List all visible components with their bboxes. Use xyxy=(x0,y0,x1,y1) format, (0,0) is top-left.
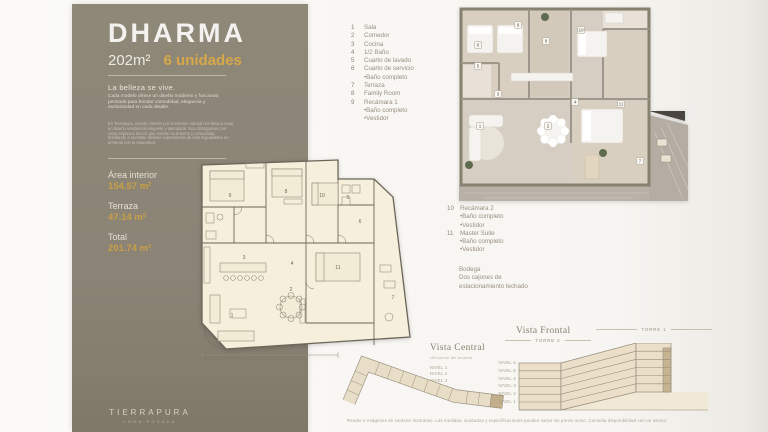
room-number-tag: 2 xyxy=(545,123,552,130)
bracket-line xyxy=(565,340,591,341)
legend-row: 4 1/2 Baño xyxy=(351,49,414,57)
legend-number xyxy=(447,246,460,254)
legend-row: 7 Terraza xyxy=(351,82,414,90)
legend-row: 10 Recámara 2 xyxy=(447,205,503,213)
legend-number: 9 xyxy=(351,99,364,107)
vista-frontal-title: Vista Frontal xyxy=(516,326,571,336)
room-number-tag: 5 xyxy=(347,195,350,201)
brochure-page: DHARMA 202m² 6 unidades La belleza se vi… xyxy=(0,0,768,432)
legend-number xyxy=(351,74,364,82)
divider xyxy=(108,75,226,76)
legend-row: •Baño completo xyxy=(351,74,414,82)
room-number-tag: 9 xyxy=(515,22,522,29)
room-number-tag: 1 xyxy=(477,123,484,130)
highlighted-unit-column xyxy=(663,348,671,392)
brand-footer: TIERRAPURA LOMA POSADA xyxy=(90,408,210,424)
legend-extra-line: estacionamiento techado xyxy=(459,283,528,291)
legend-label: Sala xyxy=(364,24,376,32)
unit-size: 202m² xyxy=(108,52,151,69)
legend-number xyxy=(351,115,364,123)
room-number-tag: 1 xyxy=(231,313,234,319)
bracket-line xyxy=(505,340,531,341)
legend-label: Master Suite xyxy=(460,230,495,238)
area-value: 47.14 m² xyxy=(108,212,157,223)
legend-row: •Baño completo xyxy=(447,213,503,221)
room-number-tag: 8 xyxy=(543,38,550,45)
brand-subtitle: LOMA POSADA xyxy=(90,419,210,424)
legend-row: 9 Recámara 1 xyxy=(351,99,414,107)
unit-count-badge: 6 unidades xyxy=(164,52,242,69)
size-row: 202m² 6 unidades xyxy=(108,52,242,69)
description-paragraph: En Tierrapura, nuestro interés por el en… xyxy=(108,122,234,146)
room-number-tag: 6 xyxy=(475,42,482,49)
legend-number: 11 xyxy=(447,230,460,238)
floor-plan-2d: 9810563421117 xyxy=(188,147,422,361)
legend-label: •Vestidor xyxy=(460,246,485,254)
legend-number: 10 xyxy=(447,205,460,213)
legend-row: •Vestidor xyxy=(447,246,503,254)
legend-row: •Vestidor xyxy=(351,115,414,123)
legend-extras: BodegaDos cajones deestacionamiento tech… xyxy=(459,266,528,291)
legend-label: •Baño completo xyxy=(364,74,407,82)
legend-label: Terraza xyxy=(364,82,385,90)
page-title: DHARMA xyxy=(108,18,246,49)
room-number-tag: 10 xyxy=(578,27,585,34)
area-label: Total xyxy=(108,232,157,242)
legend-number: 3 xyxy=(351,41,364,49)
elevation-diagram xyxy=(503,343,713,423)
legend-label: Cocina xyxy=(364,41,383,49)
brand-logo: TIERRAPURA xyxy=(90,408,210,417)
legend-row: •Baño completo xyxy=(447,238,503,246)
bracket-line xyxy=(671,329,712,330)
legend-row: 5 Cuarto de lavado xyxy=(351,57,414,65)
room-number-tag: 4 xyxy=(572,99,579,106)
room-number-tag: 3 xyxy=(495,91,502,98)
footnote: Render e imágenes de carácter ilustrativ… xyxy=(347,418,715,423)
room-number-tag: 6 xyxy=(359,219,362,225)
legend-number xyxy=(351,107,364,115)
torre-1-bracket: TORRE 1 xyxy=(596,327,712,332)
room-number-tag: 8 xyxy=(285,189,288,195)
room-number-tag: 9 xyxy=(229,193,232,199)
svg-text:10: 10 xyxy=(578,28,584,33)
bracket-line xyxy=(596,329,637,330)
area-label: Terraza xyxy=(108,201,157,211)
room-number-tag: 7 xyxy=(637,158,644,165)
legend-extra-line: Bodega xyxy=(459,266,528,274)
legend-number: 1 xyxy=(351,24,364,32)
legend-number: 2 xyxy=(351,32,364,40)
legend-number: 7 xyxy=(351,82,364,90)
torre-1-label: TORRE 1 xyxy=(641,327,666,332)
room-number-tag: 3 xyxy=(243,255,246,261)
room-number-tag: 5 xyxy=(475,63,482,70)
legend-row: •Baño completo xyxy=(351,107,414,115)
area-item: Terraza 47.14 m² xyxy=(108,201,157,223)
area-summary: Área interior 154.57 m² Terraza 47.14 m²… xyxy=(108,170,157,263)
legend-number xyxy=(447,222,460,230)
legend-row: 3 Cocina xyxy=(351,41,414,49)
legend-label: Recámara 2 xyxy=(460,205,494,213)
svg-text:11: 11 xyxy=(619,102,624,107)
legend-row: •Vestidor xyxy=(447,222,503,230)
legend-number: 4 xyxy=(351,49,364,57)
legend-label: Recámara 1 xyxy=(364,99,398,107)
legend-row: 1 Sala xyxy=(351,24,414,32)
floor-plan-3d-render: 9810653124117 xyxy=(453,3,688,203)
legend-number: 5 xyxy=(351,57,364,65)
intro-paragraph: Cada modelo ofrece un diseño moderno y f… xyxy=(108,94,224,111)
area-item: Total 201.74 m² xyxy=(108,232,157,254)
legend-row: 2 Comedor xyxy=(351,32,414,40)
legend-number xyxy=(447,213,460,221)
legend-row: 6 Cuarto de servicio xyxy=(351,65,414,73)
room-number-tag: 2 xyxy=(290,287,293,293)
legend-number: 8 xyxy=(351,90,364,98)
room-number-tag: 11 xyxy=(618,101,625,108)
tagline: La belleza se vive. xyxy=(108,83,175,92)
legend-number: 6 xyxy=(351,65,364,73)
area-label: Área interior xyxy=(108,170,157,180)
area-value: 154.57 m² xyxy=(108,181,157,192)
room-number-tag: 10 xyxy=(319,193,325,199)
legend-extra-line: Dos cajones de xyxy=(459,274,528,282)
room-number-tag: 4 xyxy=(291,261,294,267)
area-value: 201.74 m² xyxy=(108,243,157,254)
legend-column-a: 1 Sala 2 Comedor 3 Cocina 4 1/2 Baño 5 C… xyxy=(351,24,414,124)
legend-label: Cuarto de lavado xyxy=(364,57,411,65)
legend-label: •Baño completo xyxy=(460,213,503,221)
legend-label: Cuarto de servicio xyxy=(364,65,414,73)
legend-label: Comedor xyxy=(364,32,389,40)
room-number-tag: 7 xyxy=(392,295,395,301)
room-number-tag: 11 xyxy=(335,265,340,271)
legend-row: 8 Family Room xyxy=(351,90,414,98)
legend-label: •Baño completo xyxy=(460,238,503,246)
legend-row: 11 Master Suite xyxy=(447,230,503,238)
legend-label: •Vestidor xyxy=(364,115,389,123)
legend-column-b: 10 Recámara 2 •Baño completo •Vestidor 1… xyxy=(447,205,503,255)
legend-label: •Vestidor xyxy=(460,222,485,230)
area-item: Área interior 154.57 m² xyxy=(108,170,157,192)
legend-number xyxy=(447,238,460,246)
legend-label: •Baño completo xyxy=(364,107,407,115)
legend-label: Family Room xyxy=(364,90,400,98)
legend-label: 1/2 Baño xyxy=(364,49,389,57)
